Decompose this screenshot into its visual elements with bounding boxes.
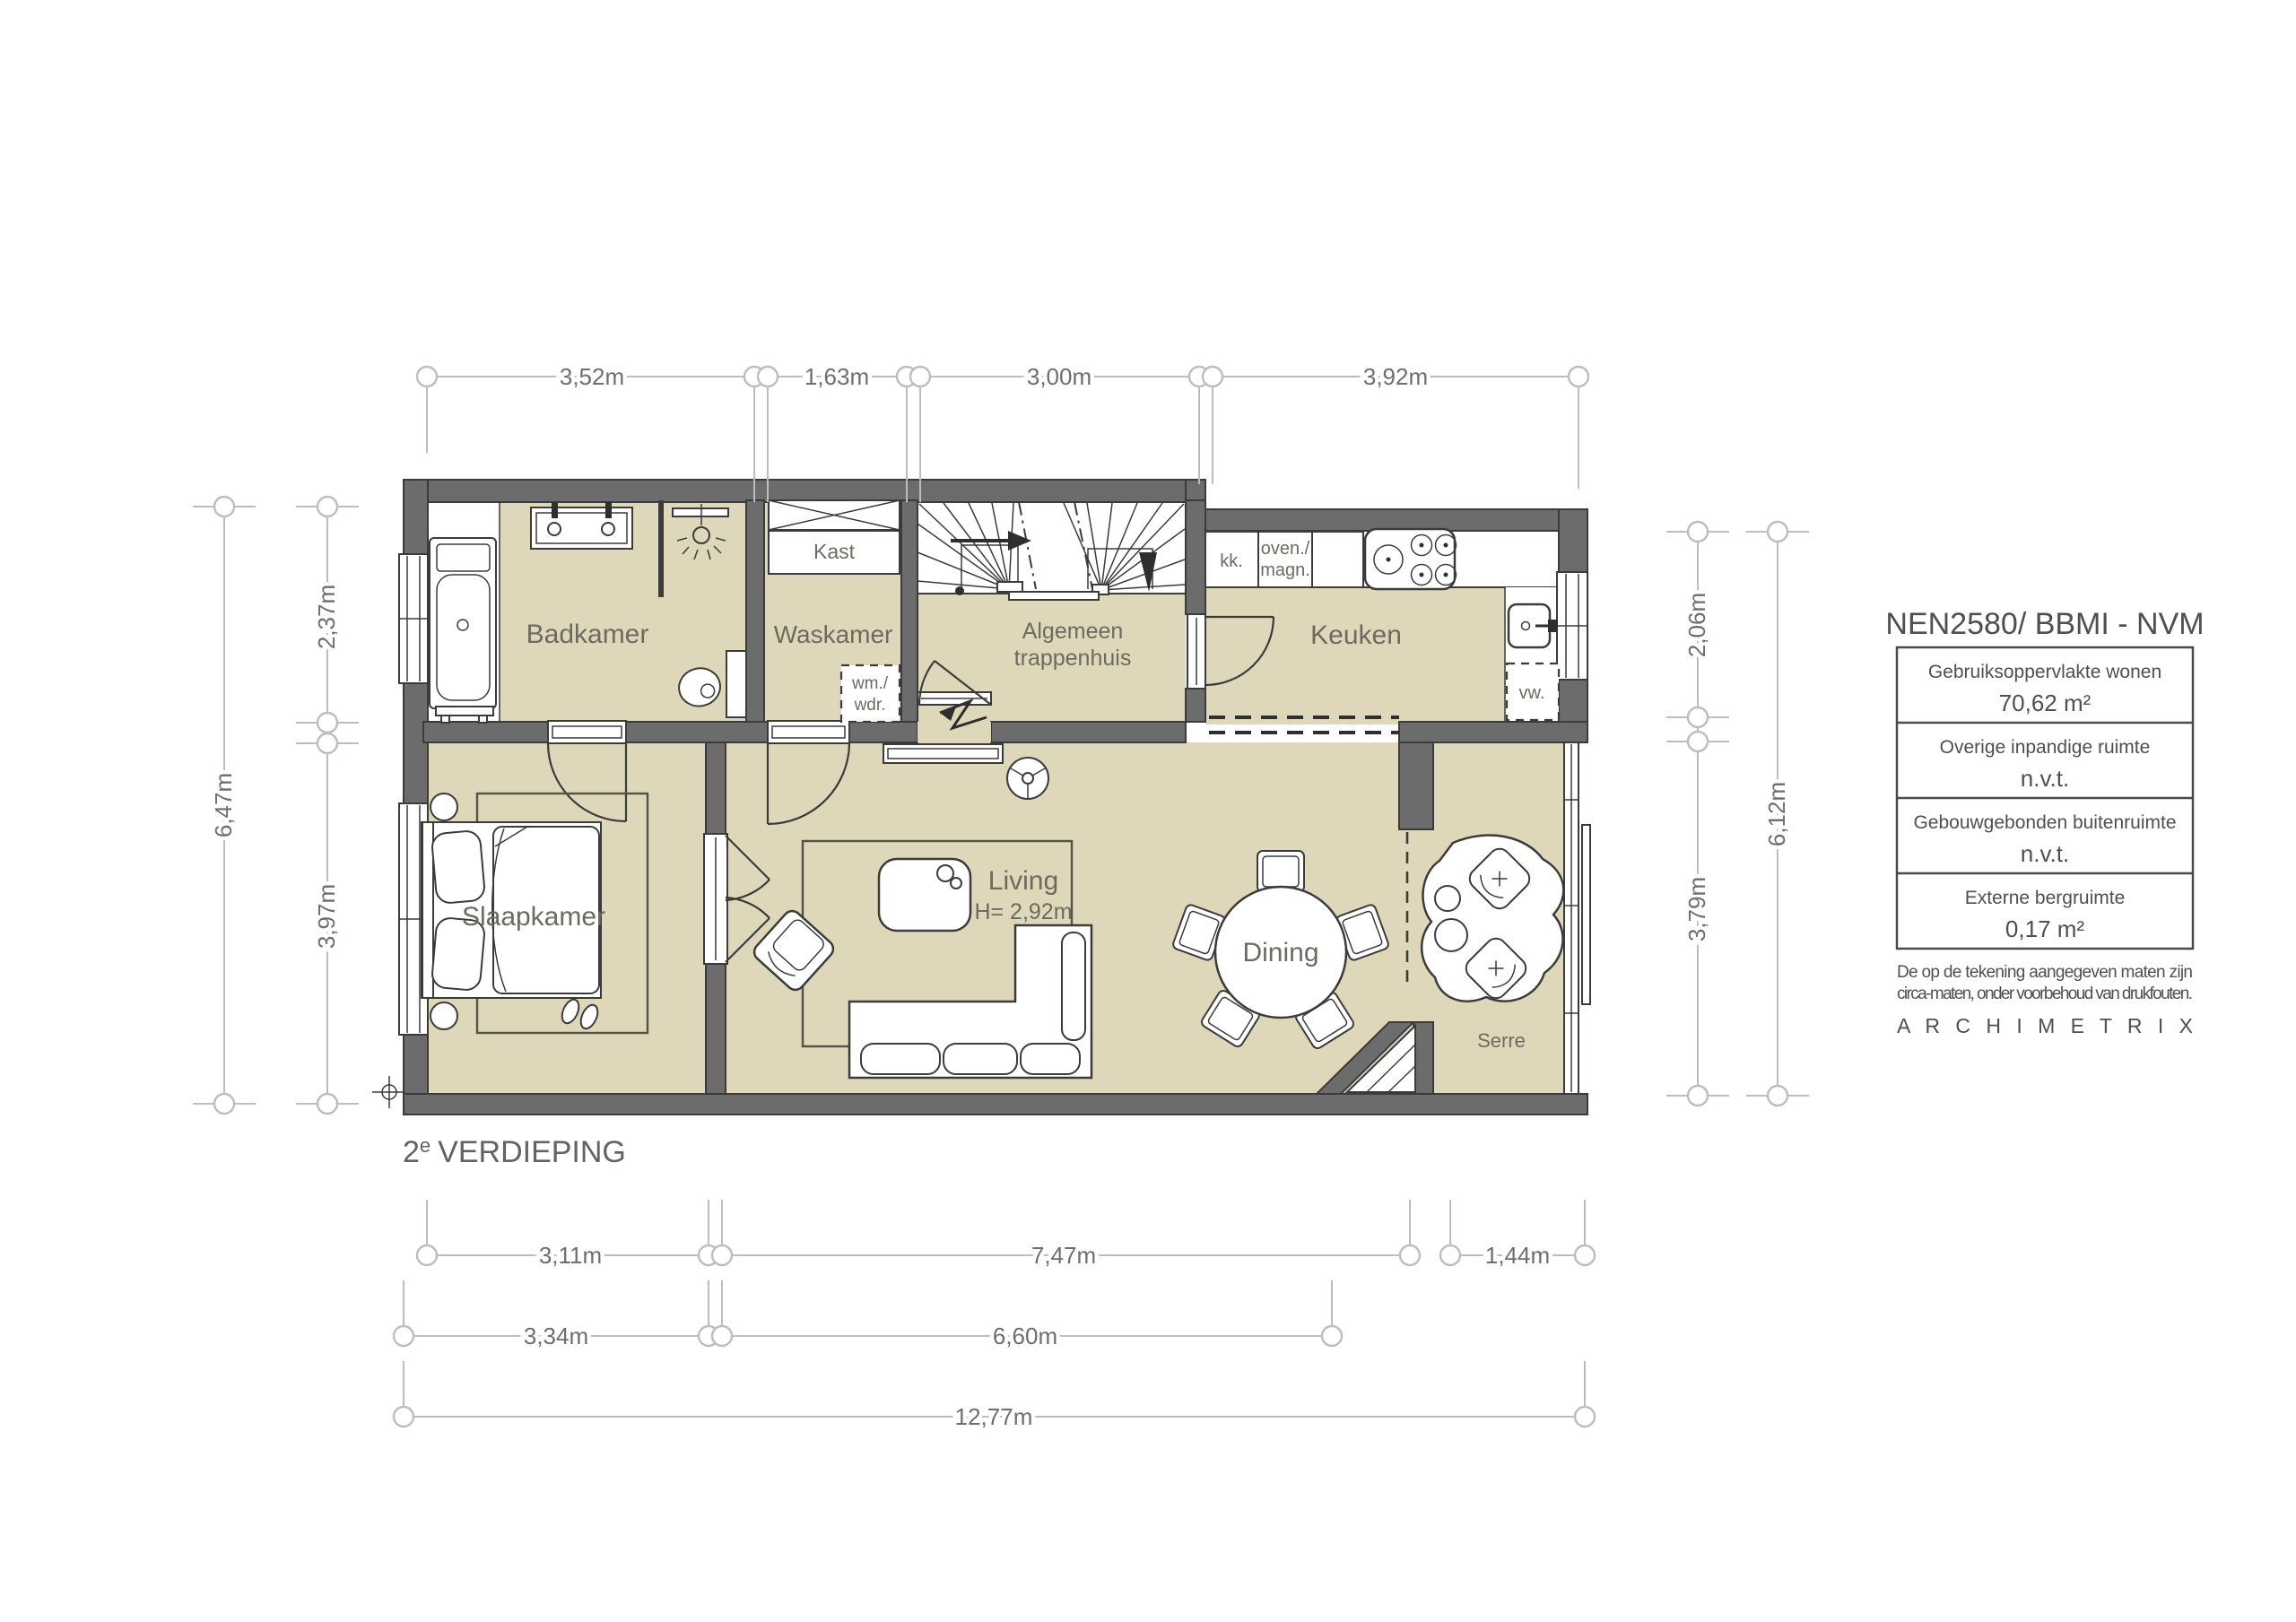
oven-label-2: magn. (1260, 560, 1310, 580)
dim-label: 3,97m (313, 884, 340, 949)
hob-icon (1365, 529, 1457, 589)
serre-furniture (1422, 836, 1563, 1003)
keuken-floor (1205, 587, 1505, 724)
stair-landing (1009, 592, 1099, 600)
dim-left: 6,47m 2,37m 3,97m (193, 497, 359, 1114)
nightstand-icon (430, 794, 457, 820)
legend-row-value: 70,62 m² (1999, 690, 2092, 716)
serre-side-table-icon (1435, 886, 1460, 911)
serre-side-table-icon (1435, 919, 1467, 951)
legend-row-label: Externe bergruimte (1965, 888, 2126, 908)
dim-bottom-total: 12,77m (394, 1361, 1595, 1430)
dim-label: 12,77m (955, 1403, 1033, 1430)
dim-right: 2,06m 3,79m 6,12m (1666, 522, 1809, 1106)
serre-label: Serre (1477, 1029, 1526, 1052)
dim-label: 2,06m (1683, 593, 1710, 657)
wall-serre-stub-top (1399, 742, 1433, 829)
slaapkamer-label: Slaapkamer (462, 902, 605, 932)
tv-bench-icon (883, 744, 1003, 763)
towel-rail-icon (673, 508, 728, 516)
wall-serre-stub-bottom (1413, 1022, 1433, 1094)
serre-outer-pane (1582, 825, 1590, 1004)
living-lamp-icon (1007, 758, 1048, 799)
keuken-label: Keuken (1310, 620, 1402, 650)
legend-disclaimer-1: De op de tekening aangegeven maten zijn (1897, 963, 2193, 982)
datum-cross-icon (372, 1076, 405, 1108)
stair-zone (918, 502, 1186, 594)
dim-label: 2,37m (313, 585, 340, 649)
storage-crate-icon (769, 500, 900, 530)
badkamer-label: Badkamer (526, 620, 649, 649)
brand-label: A R C H I M E T R I X (1897, 1014, 2193, 1037)
living-height-label: H= 2,92m (974, 899, 1072, 924)
wdr-label: wdr. (854, 696, 886, 715)
dim-label: 3,92m (1363, 363, 1428, 390)
dim-bottom-row1: 3,11m 7,47m 1,44m (417, 1200, 1595, 1269)
dim-label: 3,52m (560, 363, 624, 390)
dim-label: 3,11m (539, 1242, 602, 1269)
pillow (431, 830, 486, 904)
legend-row-value: n.v.t. (2021, 765, 2069, 792)
dim-label: 6,12m (1763, 782, 1790, 846)
floorplan-page: Kast wm./ wdr. (0, 0, 2296, 1622)
dining-label: Dining (1242, 938, 1318, 967)
wm-label: wm./ (851, 674, 889, 693)
waskamer-label: Waskamer (774, 620, 893, 648)
floorplan-drawing: Kast wm./ wdr. (0, 0, 2296, 1622)
legend-row-label: Gebruiksoppervlakte wonen (1928, 662, 2161, 682)
legend-disclaimer-2: circa-maten, onder voorbehoud van drukfo… (1897, 984, 2193, 1003)
wall-bottom (404, 1094, 1587, 1115)
dim-label: 6,60m (993, 1323, 1057, 1349)
dim-label: 3,00m (1027, 363, 1091, 390)
trappenhuis-label-1: Algemeen (1022, 619, 1124, 644)
bath-step (436, 707, 493, 716)
dim-label: 3,79m (1683, 877, 1710, 941)
dim-label: 1,63m (804, 363, 869, 390)
dim-label: 1,44m (1485, 1242, 1550, 1269)
vw-label: vw. (1519, 683, 1545, 703)
keuken-window (1557, 572, 1587, 680)
living-label: Living (988, 866, 1058, 896)
dim-label: 6,47m (210, 773, 237, 837)
legend-row-label: Gebouwgebonden buitenruimte (1913, 812, 2176, 833)
nightstand-icon (430, 1002, 457, 1029)
wall-badkamer-waskamer (746, 500, 764, 722)
floor-title: 2eVERDIEPING (403, 1134, 626, 1169)
badkamer-window (399, 554, 428, 683)
legend-row-value: n.v.t. (2021, 840, 2069, 867)
wall-serre-top (1399, 722, 1587, 742)
kast-label: Kast (813, 540, 856, 563)
wall-top-kitchen (1205, 509, 1587, 531)
serre-glazing (1564, 742, 1590, 1094)
washbasin-icon (531, 502, 632, 549)
counter-box (1312, 532, 1363, 587)
legend-row-value: 0,17 m² (2005, 915, 2084, 942)
legend-row-label: Overige inpandige ruimte (1940, 737, 2151, 758)
legend-title: NEN2580/ BBMI - NVM (1885, 607, 2204, 641)
wall-top-left (404, 480, 1205, 502)
bathtub-icon (430, 538, 496, 723)
wall-waskamer-trappenhuis (901, 500, 918, 722)
dim-label: 3,34m (524, 1323, 588, 1349)
shower-partition (658, 500, 664, 597)
dim-bottom-row2: 3,34m 6,60m (394, 1280, 1342, 1349)
kk-label: kk. (1220, 551, 1243, 571)
trappenhuis-label-2: trappenhuis (1014, 646, 1132, 671)
coffee-table-icon (879, 859, 970, 931)
legend: NEN2580/ BBMI - NVM Gebruiksoppervlakte … (1885, 607, 2204, 1037)
kitchen-sink-icon (1509, 604, 1558, 647)
dim-label: 7,47m (1031, 1242, 1096, 1269)
wall-slaapkamer-living (706, 964, 726, 1094)
oven-label-1: oven./ (1261, 539, 1310, 559)
